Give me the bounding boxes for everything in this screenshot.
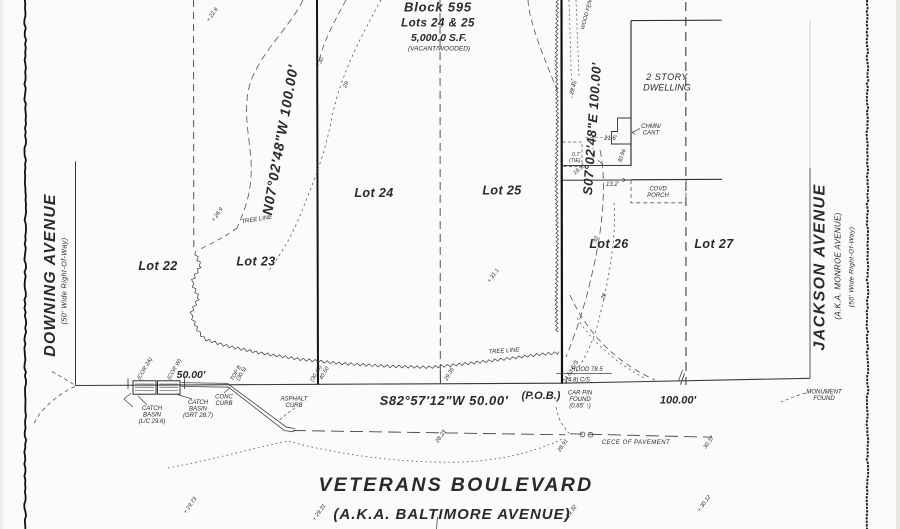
svg-text:Lot 27: Lot 27 [694,237,734,251]
svg-text:Lot 24: Lot 24 [354,186,393,200]
svg-text:(50' Wide Right-Of-Way): (50' Wide Right-Of-Way) [60,237,69,324]
svg-text:CECE OF PAVEMENT: CECE OF PAVEMENT [602,440,671,446]
svg-text:DWELLING: DWELLING [643,83,691,93]
svg-text:2 STORY: 2 STORY [645,72,688,82]
svg-text:(50' Wide Right-Of-Way): (50' Wide Right-Of-Way) [849,227,856,308]
svg-text:50.00': 50.00' [177,369,206,381]
svg-text:COVD: COVD [649,187,667,193]
svg-text:VETERANS BOULEVARD: VETERANS BOULEVARD [318,474,593,496]
svg-text:S82°57'12"W 50.00': S82°57'12"W 50.00' [380,393,509,408]
svg-text:ASPHALT: ASPHALT [280,397,309,403]
svg-text:FOUND: FOUND [813,396,835,402]
svg-text:Lot 25: Lot 25 [482,184,522,198]
svg-text:Lot 22: Lot 22 [138,259,177,273]
svg-text:21.6': 21.6' [603,136,618,142]
svg-text:(VACANT/WOODED): (VACANT/WOODED) [408,46,470,53]
svg-text:13.2': 13.2' [606,182,620,188]
svg-text:(GRT 28.7): (GRT 28.7) [183,413,213,419]
svg-text:FOUND: FOUND [569,397,591,403]
svg-text:MONUMENT: MONUMENT [806,390,843,396]
svg-text:DOWNING AVENUE: DOWNING AVENUE [42,193,59,356]
svg-text:(A.K.A. BALTIMORE AVENUE): (A.K.A. BALTIMORE AVENUE) [333,506,570,523]
svg-text:BASIN: BASIN [189,407,208,413]
svg-text:5,000.0 S.F.: 5,000.0 S.F. [411,32,467,44]
svg-text:(P.O.B.): (P.O.B.) [522,390,561,402]
svg-text:Lot 23: Lot 23 [236,255,275,269]
svg-text:(A.K.A. MONROE AVENUE): (A.K.A. MONROE AVENUE) [834,212,843,319]
svg-text:CANT: CANT [643,131,661,137]
svg-text:CURB: CURB [285,403,302,409]
svg-text:BASIN: BASIN [143,413,162,419]
svg-text:CAR PIN: CAR PIN [568,391,593,397]
svg-text:CURB: CURB [215,401,232,407]
svg-text:PORCH: PORCH [647,193,669,199]
svg-text:Lots 24 & 25: Lots 24 & 25 [401,18,475,30]
svg-text:CHMN/: CHMN/ [641,124,662,130]
svg-text:CATCH: CATCH [188,400,209,406]
svg-text:(TIE): (TIE) [569,158,581,164]
svg-text:Block 595: Block 595 [404,0,472,15]
svg-text:(L/C 29.6): (L/C 29.6) [139,419,166,425]
svg-text:JACKSON AVENUE: JACKSON AVENUE [812,183,829,350]
svg-text:(0.65' ↑): (0.65' ↑) [569,404,591,410]
svg-text:CONC: CONC [215,395,233,401]
svg-text:100.00': 100.00' [660,395,697,407]
svg-text:CATCH: CATCH [142,406,163,412]
